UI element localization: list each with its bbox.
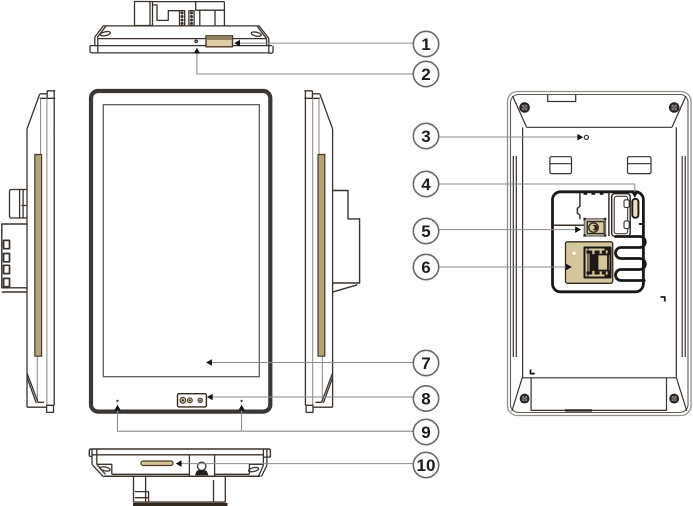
svg-text:8: 8 [421,390,430,409]
svg-text:1: 1 [421,35,430,54]
svg-text:3: 3 [421,127,430,146]
svg-text:9: 9 [421,423,430,442]
svg-text:2: 2 [421,65,430,84]
svg-text:6: 6 [421,258,430,277]
svg-text:10: 10 [417,456,436,475]
svg-text:4: 4 [421,175,431,194]
svg-text:5: 5 [421,222,430,241]
svg-text:7: 7 [421,354,430,373]
